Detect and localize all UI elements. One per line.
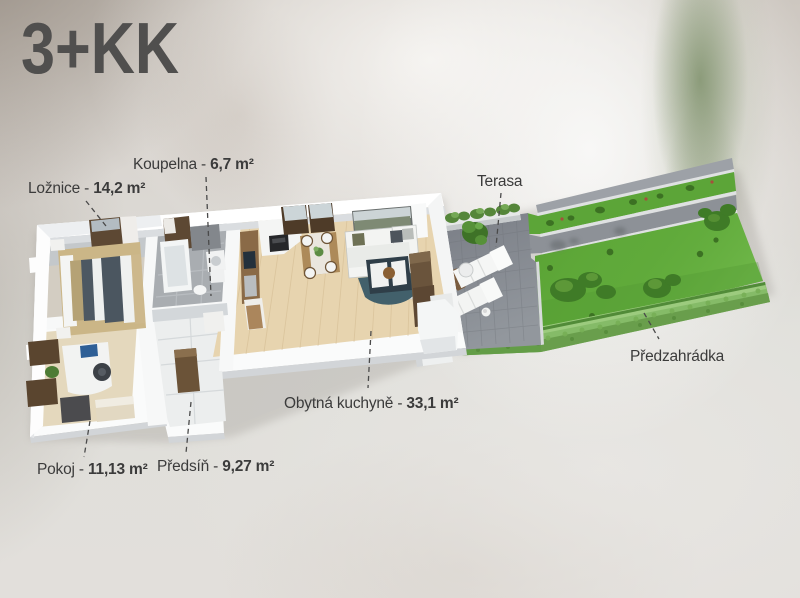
svg-text:Předzahrádka: Předzahrádka <box>630 348 725 365</box>
svg-text:Terasa: Terasa <box>477 173 523 190</box>
svg-text:Koupelna - 6,7 m²: Koupelna - 6,7 m² <box>133 156 254 173</box>
svg-text:Ložnice - 14,2 m²: Ložnice - 14,2 m² <box>28 180 145 197</box>
svg-text:Předsíň - 9,27 m²: Předsíň - 9,27 m² <box>157 458 274 475</box>
svg-text:Obytná kuchyně - 33,1 m²: Obytná kuchyně - 33,1 m² <box>284 395 458 412</box>
svg-text:3+KK: 3+KK <box>21 9 179 89</box>
svg-text:Pokoj - 11,13 m²: Pokoj - 11,13 m² <box>37 461 148 478</box>
